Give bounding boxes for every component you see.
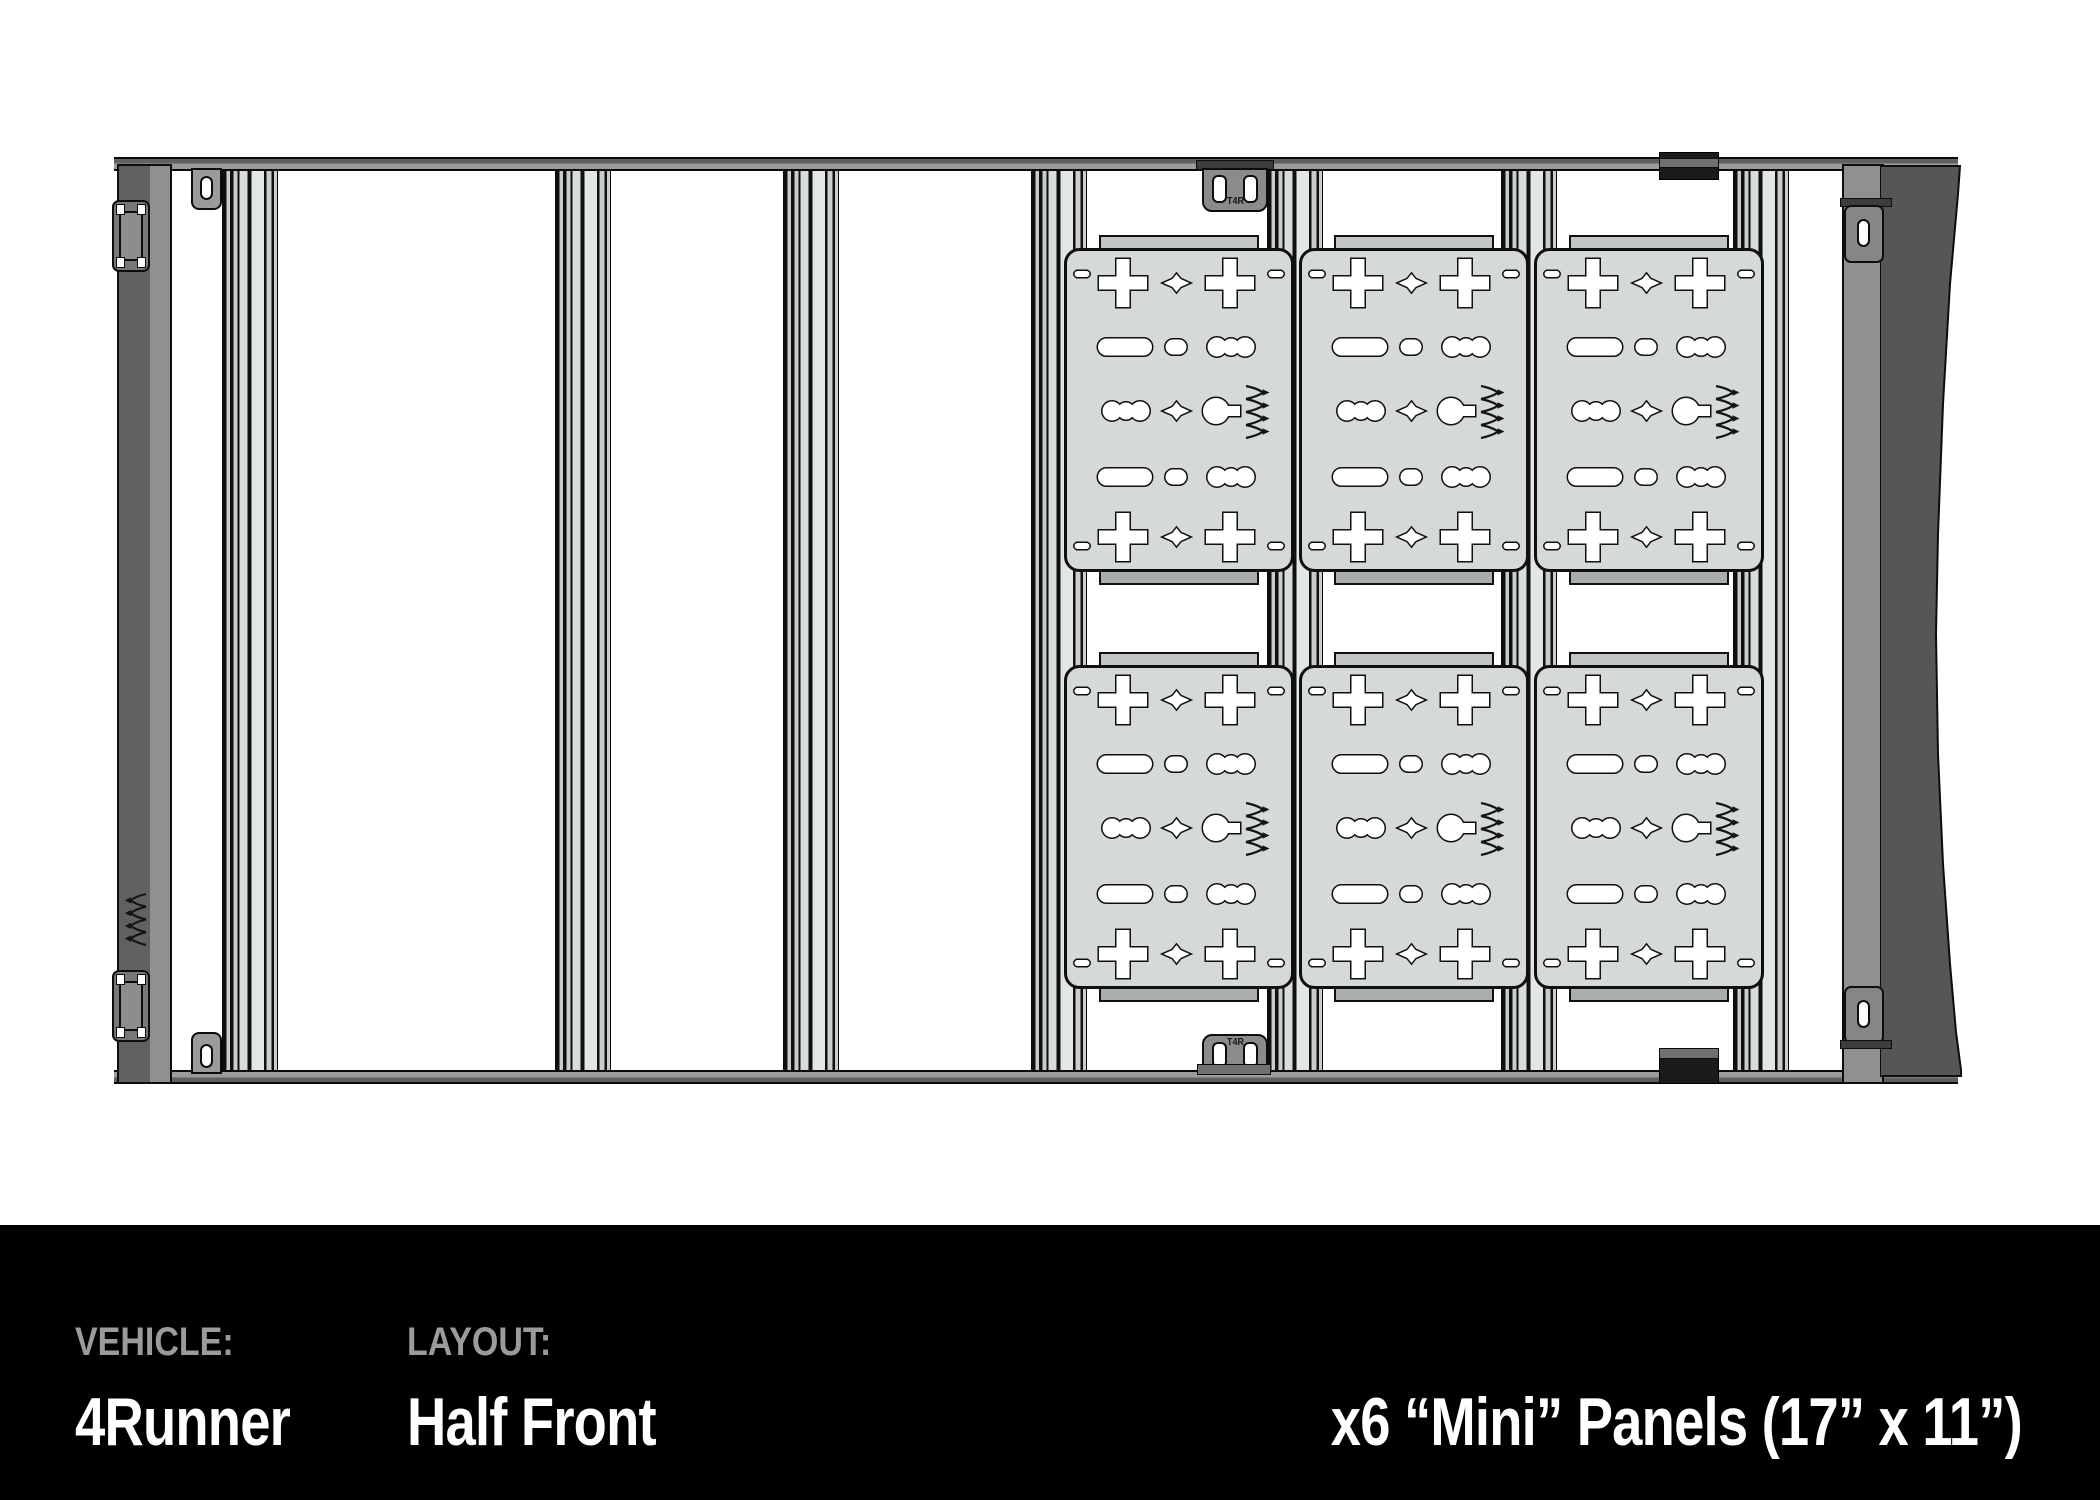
panels-note: x6 “Mini” Panels (17” x 11”) <box>1331 1383 2022 1461</box>
vehicle-value: 4Runner <box>75 1383 290 1461</box>
left-clamp-front-inner <box>119 211 143 261</box>
rear-flat-bracket-band <box>1659 1048 1719 1059</box>
mini-panel <box>1064 665 1294 989</box>
crossbar <box>783 168 839 1073</box>
right-clamp-rear <box>1844 986 1884 1044</box>
rail-tab-bracket-front-left <box>191 168 222 210</box>
mini-panel <box>1064 248 1294 572</box>
mini-panel <box>1534 248 1764 572</box>
caption-footer: VEHICLE: 4Runner LAYOUT: Half Front x6 “… <box>0 1225 2100 1500</box>
mini-panel <box>1299 665 1529 989</box>
clamp-notch <box>137 974 146 985</box>
clamp-notch <box>137 257 146 268</box>
crossbar <box>555 168 611 1073</box>
clamp-notch <box>116 204 125 215</box>
clamp-slot <box>1857 219 1870 247</box>
rail-tab-bracket-rear-left <box>191 1032 222 1074</box>
bracket-slot <box>1212 175 1227 203</box>
clamp-notch <box>137 204 146 215</box>
left-clamp-front <box>112 200 150 272</box>
vehicle-label: VEHICLE: <box>75 1320 234 1365</box>
layout-label: LAYOUT: <box>407 1320 551 1365</box>
bracket-marking: T4R <box>1227 196 1244 207</box>
brand-logo-engraving-icon <box>123 892 147 948</box>
bracket-marking: T4R <box>1227 1037 1244 1048</box>
rear-bracket-foot <box>1197 1064 1271 1075</box>
clamp-notch <box>116 974 125 985</box>
mini-panel <box>1534 665 1764 989</box>
left-clamp-rear <box>112 970 150 1042</box>
right-clamp-front <box>1844 205 1884 263</box>
left-side-flange <box>150 164 172 1084</box>
front-t4r-bracket: T4R <box>1202 168 1268 212</box>
left-clamp-rear-inner <box>119 981 143 1031</box>
clamp-notch <box>116 257 125 268</box>
bracket-slot <box>1243 175 1258 203</box>
right-side-flange <box>1842 164 1884 1084</box>
front-flat-bracket-band <box>1659 158 1719 168</box>
clamp-slot <box>1857 1000 1870 1028</box>
layout-value: Half Front <box>407 1383 656 1461</box>
tab-slot <box>200 176 213 200</box>
clamp-notch <box>116 1027 125 1038</box>
right-clamp-rear-bar <box>1840 1040 1892 1049</box>
right-side-plate <box>1880 164 1966 1080</box>
clamp-notch <box>137 1027 146 1038</box>
tab-slot <box>200 1044 213 1068</box>
mini-panel <box>1299 248 1529 572</box>
screenshot-root: T4R T4R VEHICLE: 4Runner LAYOUT: Half Fr… <box>0 0 2100 1500</box>
crossbar <box>222 168 278 1073</box>
